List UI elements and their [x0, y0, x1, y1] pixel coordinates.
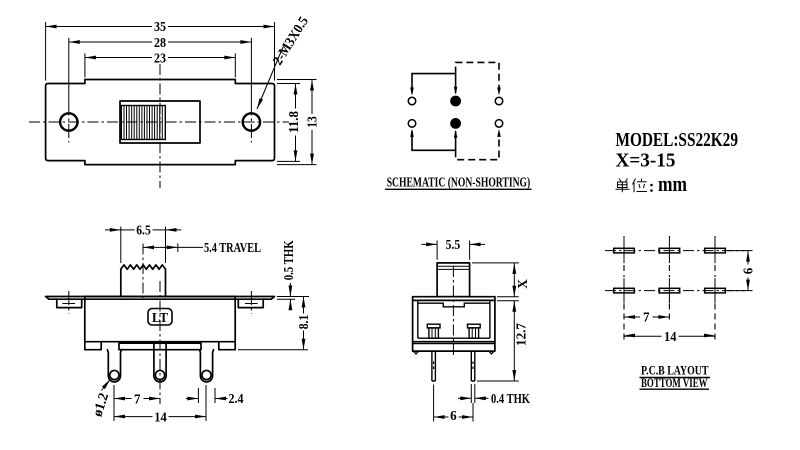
- svg-text:mm: mm: [658, 171, 687, 196]
- svg-text:MODEL:SS22K29: MODEL:SS22K29: [616, 130, 739, 151]
- svg-text:BOTTOM VIEW: BOTTOM VIEW: [641, 376, 708, 390]
- svg-text:14: 14: [664, 330, 677, 345]
- svg-text:SCHEMATIC (NON-SHORTING): SCHEMATIC (NON-SHORTING): [387, 175, 531, 190]
- svg-text:X: X: [516, 279, 531, 289]
- svg-text:5.4 TRAVEL: 5.4 TRAVEL: [204, 241, 261, 256]
- svg-text:7: 7: [643, 311, 650, 326]
- svg-text:11.8: 11.8: [287, 111, 302, 133]
- svg-text:23: 23: [154, 51, 166, 66]
- svg-text:13: 13: [306, 116, 321, 128]
- svg-text:0.5 THK: 0.5 THK: [282, 240, 297, 280]
- svg-text:5.5: 5.5: [446, 238, 461, 253]
- svg-text:12.7: 12.7: [514, 323, 529, 346]
- svg-text:28: 28: [154, 36, 166, 51]
- svg-text:14: 14: [154, 410, 167, 425]
- svg-text:6: 6: [450, 409, 457, 424]
- svg-text:X=3-15: X=3-15: [616, 151, 676, 172]
- svg-text:6.5: 6.5: [136, 224, 151, 239]
- svg-text:8.1: 8.1: [297, 315, 312, 330]
- svg-text:2.4: 2.4: [229, 392, 244, 407]
- svg-text:6: 6: [741, 268, 756, 275]
- svg-text:7: 7: [134, 392, 141, 407]
- svg-text:35: 35: [154, 20, 166, 35]
- svg-text:0.4 THK: 0.4 THK: [491, 392, 530, 407]
